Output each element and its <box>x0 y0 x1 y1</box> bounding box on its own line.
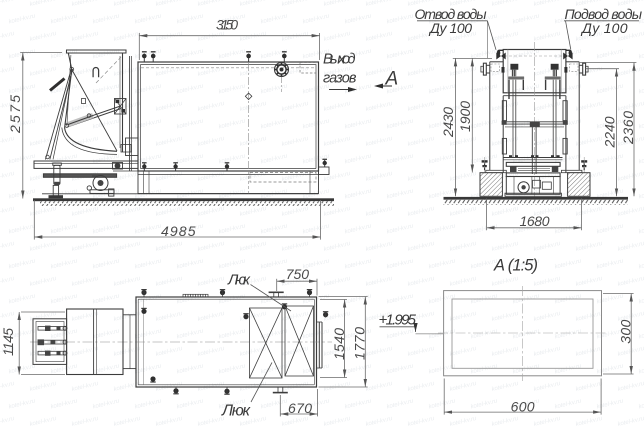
svg-text:2240: 2240 <box>602 116 618 148</box>
svg-text:Люк: Люк <box>221 402 251 419</box>
svg-text:2430: 2430 <box>440 107 456 138</box>
svg-text:Ду 100: Ду 100 <box>428 20 472 36</box>
svg-text:4985: 4985 <box>161 223 196 239</box>
svg-text:1680: 1680 <box>520 213 550 229</box>
svg-text:1145: 1145 <box>0 328 16 356</box>
svg-text:300: 300 <box>617 319 633 343</box>
svg-text:Выход: Выход <box>323 52 356 68</box>
svg-text:670: 670 <box>288 400 312 416</box>
svg-text:2360: 2360 <box>620 111 636 145</box>
svg-text:газов: газов <box>323 71 357 87</box>
svg-text:А: А <box>385 69 399 90</box>
svg-text:3150: 3150 <box>216 17 238 33</box>
svg-text:600: 600 <box>511 398 535 414</box>
svg-text:1540: 1540 <box>331 328 347 360</box>
svg-text:1770: 1770 <box>352 327 368 360</box>
svg-text:Ду 100: Ду 100 <box>580 20 628 36</box>
svg-text:750: 750 <box>286 266 310 282</box>
svg-text:+1.995: +1.995 <box>379 312 417 329</box>
svg-text:1900: 1900 <box>457 101 473 132</box>
svg-text:А (1:5): А (1:5) <box>493 257 538 275</box>
svg-text:Люк: Люк <box>227 272 251 289</box>
